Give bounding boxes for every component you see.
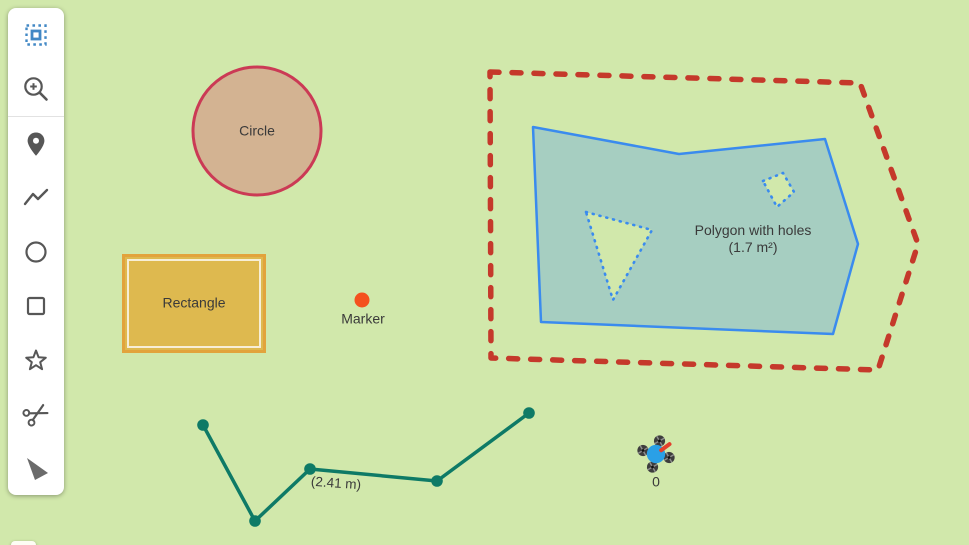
marker-shape[interactable] bbox=[355, 293, 370, 308]
drone-label: 0 bbox=[652, 474, 660, 491]
circle-label: Circle bbox=[239, 123, 275, 140]
transform-selection-icon bbox=[21, 20, 51, 50]
polygon-label-title: Polygon with holes bbox=[695, 222, 812, 239]
polyline-vertex[interactable] bbox=[523, 407, 535, 419]
polyline-vertex[interactable] bbox=[197, 419, 209, 431]
zoom-in-icon bbox=[21, 74, 51, 104]
circle-tool-icon bbox=[21, 237, 51, 267]
polyline-vertex[interactable] bbox=[431, 475, 443, 487]
marker-tool-button[interactable] bbox=[8, 117, 64, 171]
cut-tool-button[interactable] bbox=[8, 387, 64, 441]
polygon-label-area: (1.7 m²) bbox=[695, 239, 812, 256]
polyline-tool-button[interactable] bbox=[8, 171, 64, 225]
drawing-toolbar bbox=[8, 8, 64, 495]
marker-label: Marker bbox=[341, 311, 385, 328]
circle-tool-button[interactable] bbox=[8, 225, 64, 279]
polyline-shape[interactable] bbox=[197, 407, 535, 527]
polyline-tool-icon bbox=[21, 183, 51, 213]
polygon-label: Polygon with holes (1.7 m²) bbox=[695, 222, 812, 256]
rectangle-tool-icon bbox=[21, 291, 51, 321]
drone-marker[interactable] bbox=[633, 431, 680, 478]
polyline-measurement-label: (2.41 m) bbox=[310, 473, 361, 493]
rectangle-label: Rectangle bbox=[162, 295, 225, 312]
zoom-in-button[interactable] bbox=[8, 62, 64, 116]
rectangle-tool-button[interactable] bbox=[8, 279, 64, 333]
map-canvas[interactable]: Circle Rectangle Marker Polygon with hol… bbox=[0, 0, 969, 545]
transform-selection-button[interactable] bbox=[8, 8, 64, 62]
drag-cursor-tool-icon bbox=[21, 453, 51, 483]
marker-tool-icon bbox=[21, 129, 51, 159]
shapes-layer bbox=[0, 0, 969, 545]
cut-tool-icon bbox=[21, 399, 51, 429]
polyline-vertex[interactable] bbox=[249, 515, 261, 527]
star-polygon-tool-button[interactable] bbox=[8, 333, 64, 387]
bottom-partial-control[interactable] bbox=[11, 541, 36, 545]
star-polygon-tool-icon bbox=[21, 345, 51, 375]
drag-cursor-tool-button[interactable] bbox=[8, 441, 64, 495]
